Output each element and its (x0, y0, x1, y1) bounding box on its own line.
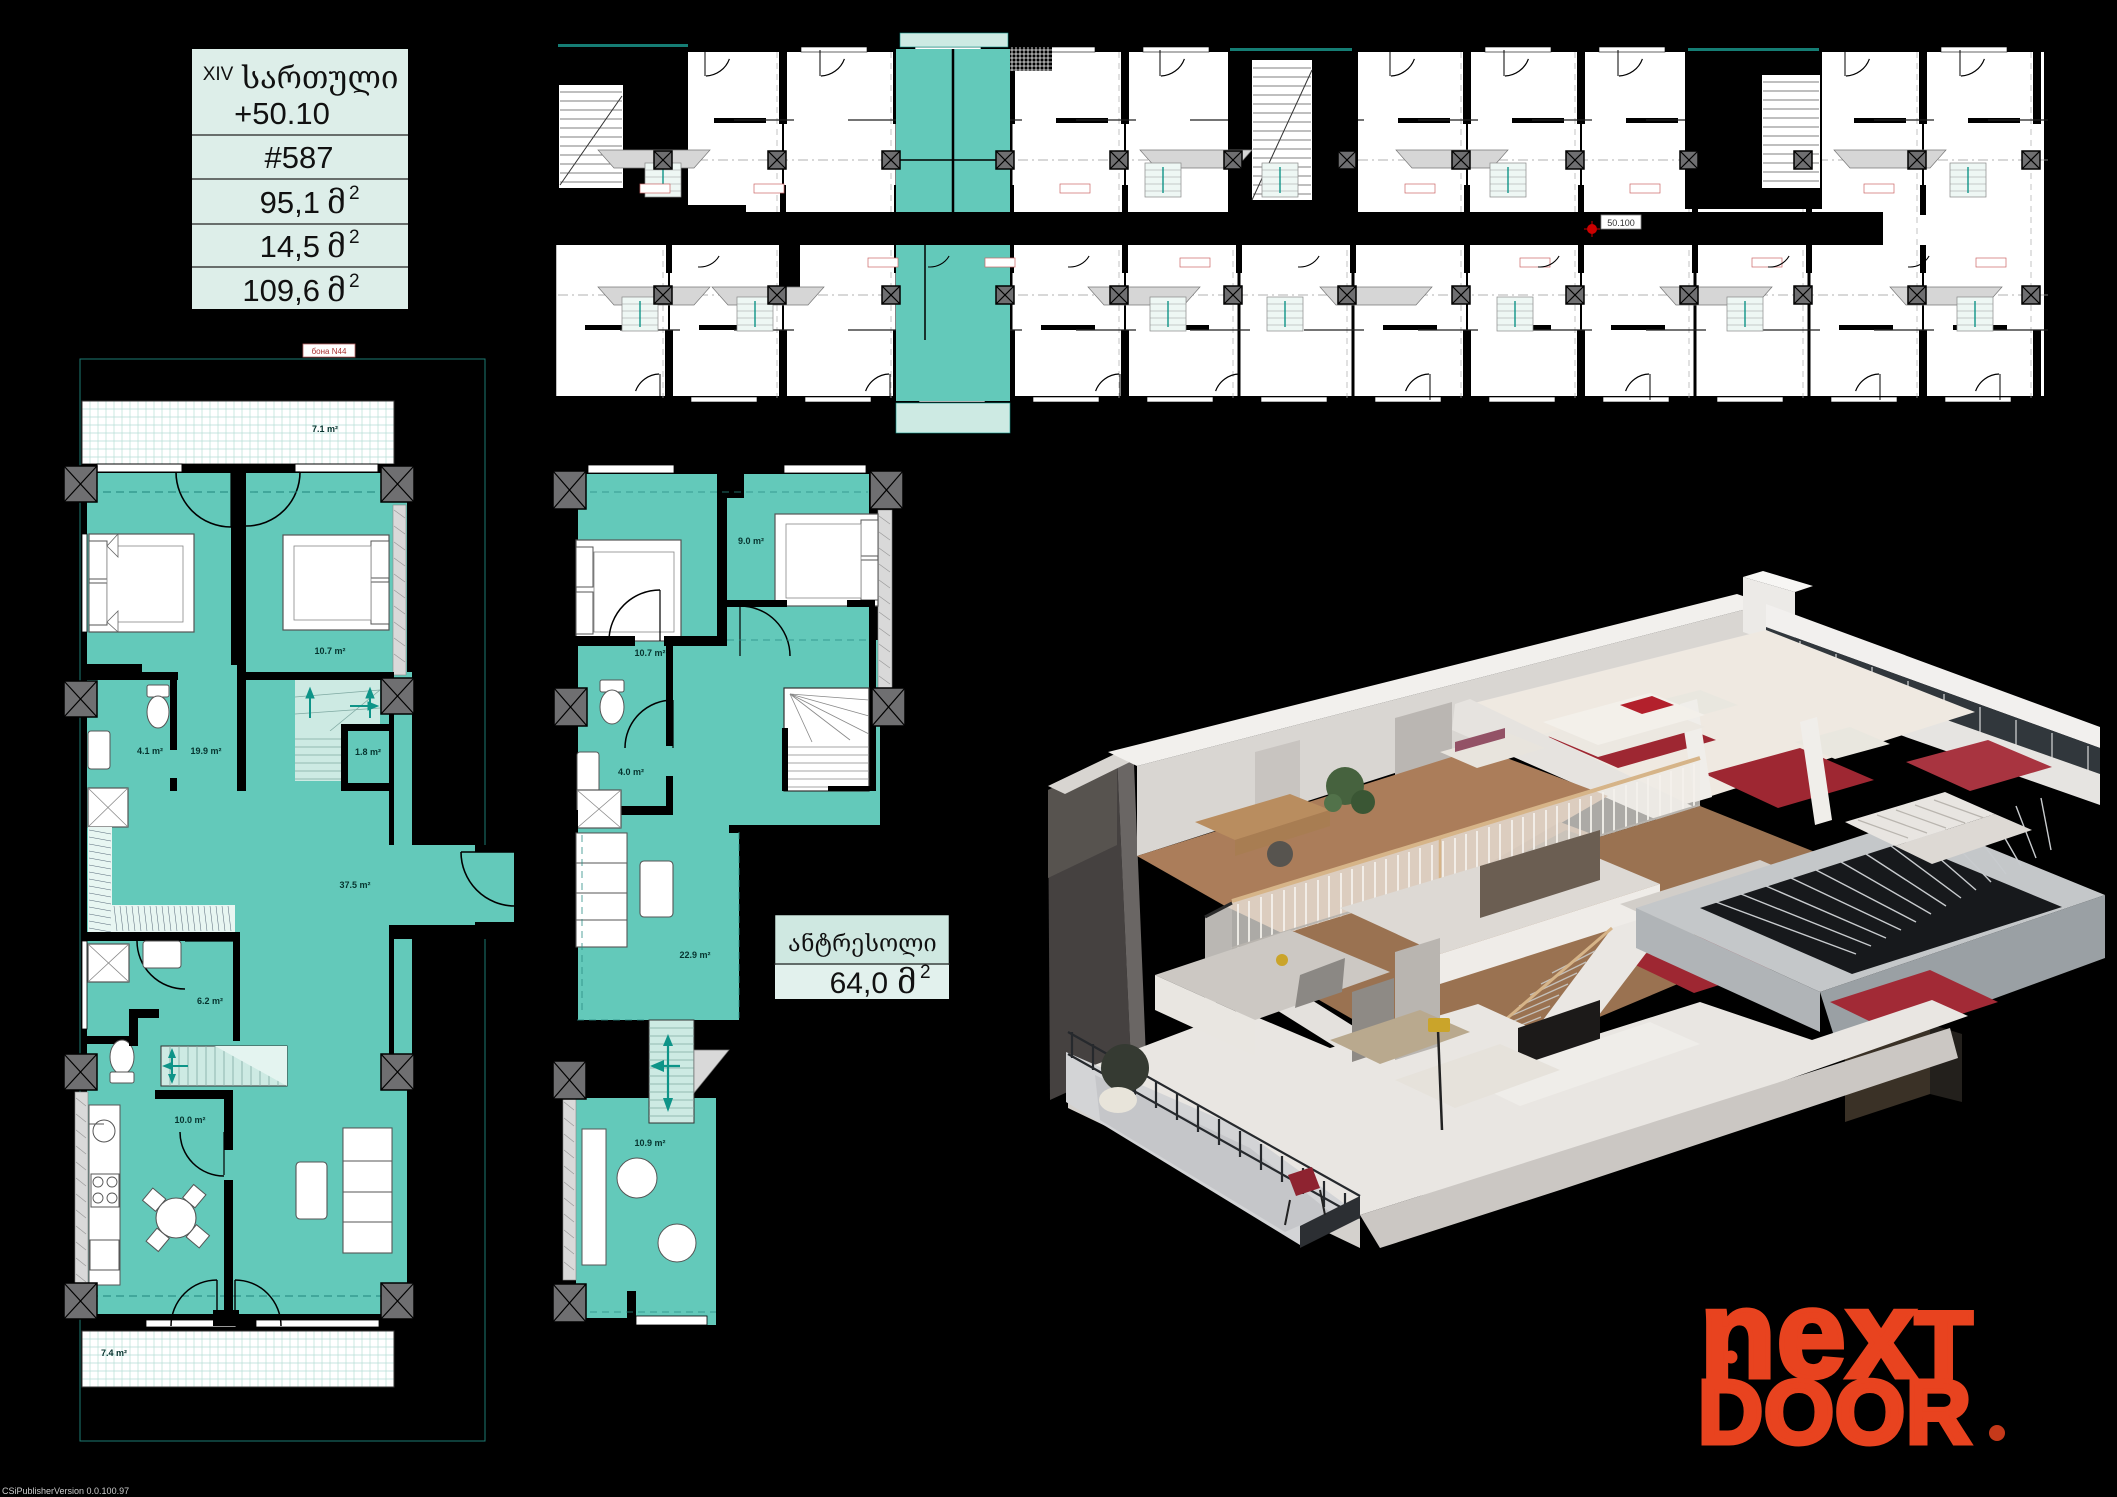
svg-text:2: 2 (920, 962, 931, 983)
svg-text:2: 2 (349, 227, 360, 248)
svg-text:7.1 m²: 7.1 m² (312, 424, 338, 434)
svg-text:#587: #587 (265, 140, 334, 175)
svg-text:64,0: 64,0 (830, 967, 888, 1000)
svg-text:бонa N44: бонa N44 (312, 347, 347, 356)
svg-text:2: 2 (349, 183, 360, 204)
svg-text:10.7 m²: 10.7 m² (314, 646, 345, 656)
svg-text:19.9 m²: 19.9 m² (190, 746, 221, 756)
svg-text:22.9 m²: 22.9 m² (679, 950, 710, 960)
svg-text:10.0 m²: 10.0 m² (174, 1115, 205, 1125)
svg-text:50.100: 50.100 (1607, 218, 1635, 228)
svg-text:+50.10: +50.10 (234, 96, 330, 131)
svg-text:1.8 m²: 1.8 m² (355, 747, 381, 757)
svg-text:14,5: 14,5 (260, 229, 320, 264)
svg-text:2: 2 (349, 271, 360, 292)
svg-text:6.2 m²: 6.2 m² (197, 996, 223, 1006)
svg-text:CSiPublisherVersion 0.0.100.97: CSiPublisherVersion 0.0.100.97 (2, 1486, 129, 1496)
svg-text:4.1 m²: 4.1 m² (137, 746, 163, 756)
svg-text:DOOR: DOOR (1698, 1363, 1972, 1463)
svg-text:XIV: XIV (203, 64, 234, 85)
svg-text:4.0 m²: 4.0 m² (618, 767, 644, 777)
svg-text:9.0 m²: 9.0 m² (738, 536, 764, 546)
svg-text:7.4 m²: 7.4 m² (101, 1348, 127, 1358)
svg-text:95,1: 95,1 (260, 185, 320, 220)
svg-text:37.5 m²: 37.5 m² (339, 880, 370, 890)
svg-text:10.7 m²: 10.7 m² (634, 648, 665, 658)
svg-text:10.9 m²: 10.9 m² (634, 1138, 665, 1148)
svg-text:109,6: 109,6 (242, 273, 320, 308)
